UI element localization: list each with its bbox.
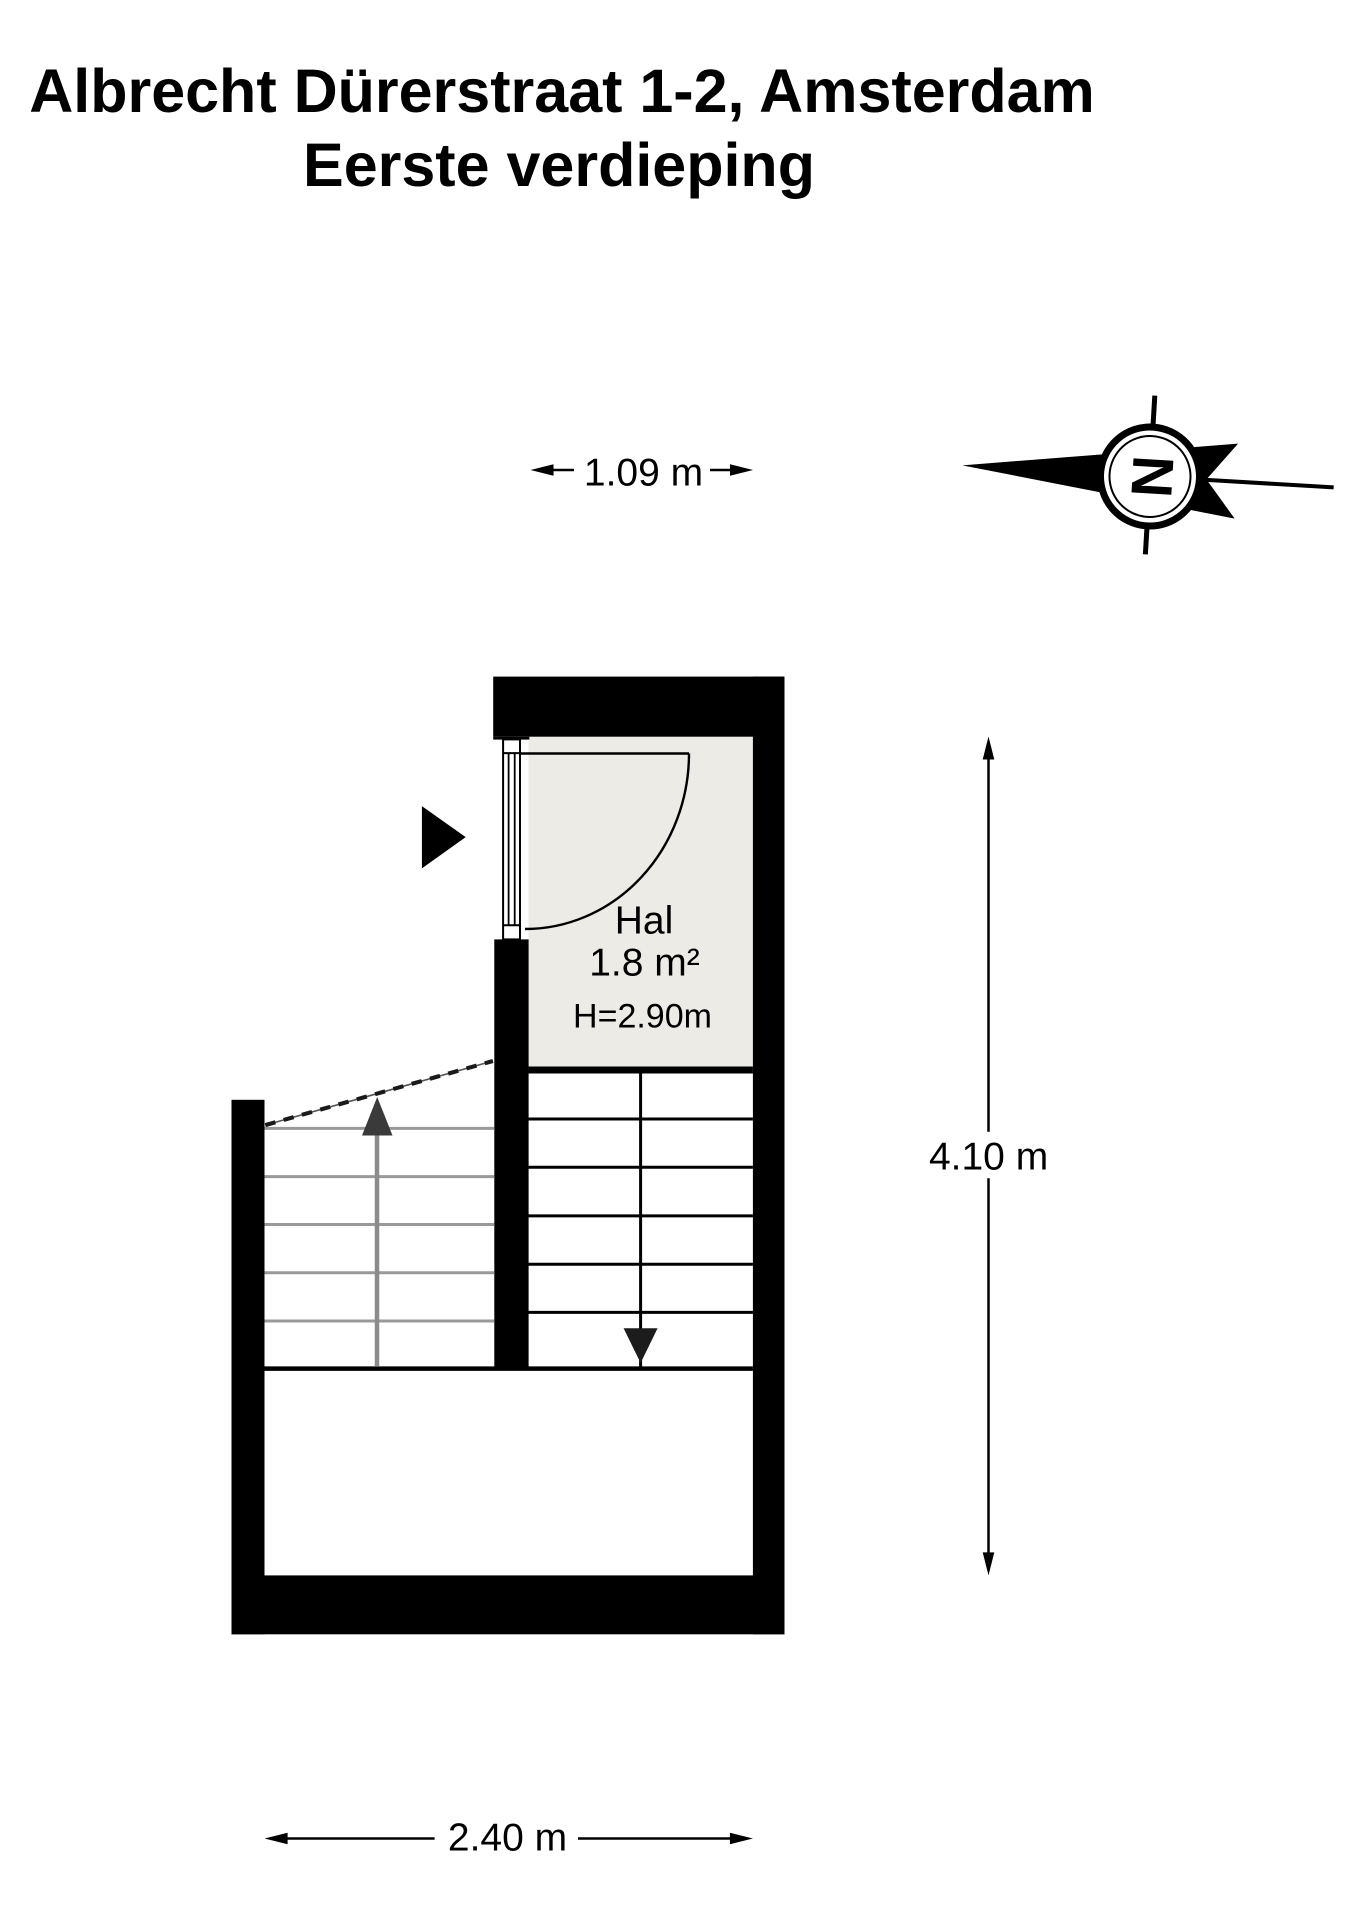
svg-text:H=2.90m: H=2.90m [573, 998, 712, 1036]
svg-text:2.40 m: 2.40 m [448, 1817, 567, 1860]
svg-text:1.8 m²: 1.8 m² [589, 942, 700, 985]
svg-text:Hal: Hal [615, 900, 674, 943]
svg-text:Albrecht Dürerstraat 1-2, Amst: Albrecht Dürerstraat 1-2, Amsterdam [29, 57, 1095, 125]
svg-text:Eerste verdieping: Eerste verdieping [303, 131, 815, 199]
svg-text:4.10 m: 4.10 m [929, 1136, 1048, 1179]
svg-text:N: N [1118, 454, 1185, 500]
svg-text:1.09 m: 1.09 m [584, 451, 703, 494]
